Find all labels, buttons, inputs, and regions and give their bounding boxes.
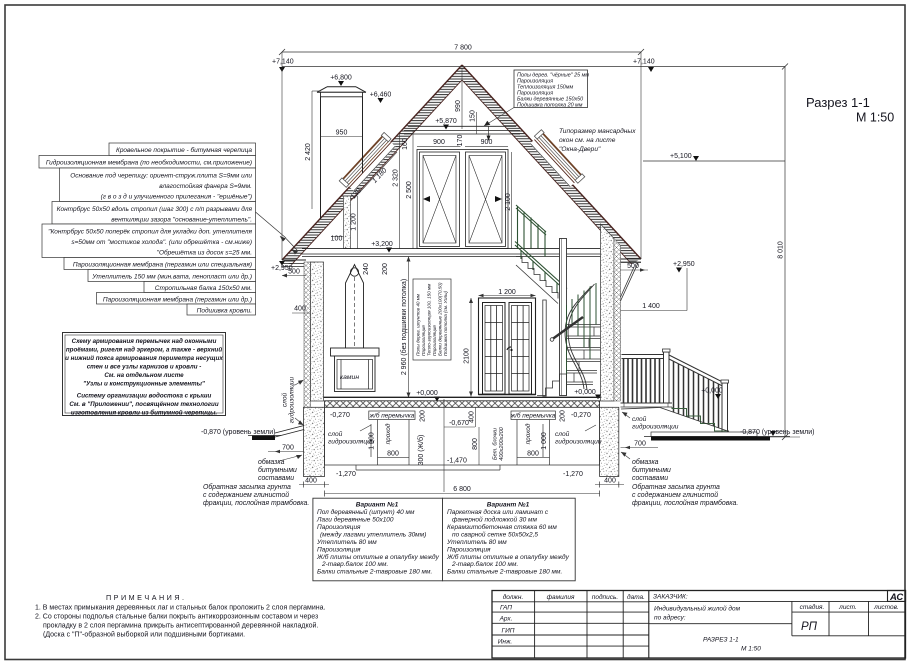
svg-text:(между лагами утеплитель 30мм): (между лагами утеплитель 30мм): [320, 531, 426, 539]
svg-text:См. на отдельном листе: См. на отдельном листе: [104, 372, 184, 379]
svg-text:Арх.: Арх.: [499, 616, 513, 623]
svg-text:Ж/б плиты отлитые в опалубку м: Ж/б плиты отлитые в опалубку между: [446, 553, 570, 561]
svg-text:с содержанием глинистой: с содержанием глинистой: [203, 491, 289, 499]
svg-text:РП: РП: [801, 621, 818, 633]
svg-text:Кровельное покрытие - битумная: Кровельное покрытие - битумная черепица: [116, 146, 252, 154]
svg-text:М 1:50: М 1:50: [856, 111, 894, 125]
svg-text:Обратная засыпка грунта: Обратная засыпка грунта: [203, 483, 291, 491]
svg-text:Керамзитобетонная стяжка 60 мм: Керамзитобетонная стяжка 60 мм: [447, 523, 557, 531]
svg-text:камин: камин: [340, 374, 359, 381]
svg-text:2 320: 2 320: [393, 169, 400, 187]
svg-text:950: 950: [336, 130, 348, 137]
svg-text:Контрбрус 50х50 вдоль стропил: Контрбрус 50х50 вдоль стропил (шаг 300) …: [57, 205, 253, 213]
svg-text:обмазка: обмазка: [258, 458, 285, 466]
svg-text:+5,870: +5,870: [435, 118, 457, 125]
svg-text:должн.: должн.: [503, 593, 524, 601]
svg-text:гидроизоляции: гидроизоляции: [288, 376, 296, 423]
svg-text:по сварной сетке 50х50х2,5: по сварной сетке 50х50х2,5: [452, 531, 538, 539]
svg-text:ЗАКАЗЧИК:: ЗАКАЗЧИК:: [653, 594, 688, 601]
svg-text:изготовления кровли из битумно: изготовления кровли из битумной черепицы…: [71, 410, 217, 417]
svg-text:Стропильная балка 150х50 мм.: Стропильная балка 150х50 мм.: [155, 284, 252, 292]
svg-text:вентиляции зазора "основание-у: вентиляции зазора "основание-утеплитель"…: [111, 217, 252, 224]
svg-text:2 960 (без подшивки потолка): 2 960 (без подшивки потолка): [400, 279, 408, 375]
svg-text:700: 700: [282, 445, 294, 452]
svg-text:ГИП: ГИП: [502, 627, 515, 634]
svg-text:ГАП: ГАП: [500, 605, 512, 612]
svg-text:АС: АС: [889, 592, 903, 603]
svg-text:990: 990: [455, 100, 462, 112]
svg-text:фракции, послойная трамбовка.: фракции, послойная трамбовка.: [632, 499, 738, 507]
svg-text:Гидроизоляционная мембрана (п: Гидроизоляционная мембрана (по необходим…: [46, 159, 252, 167]
svg-text:2 500: 2 500: [406, 181, 413, 199]
svg-text:слой: слой: [555, 430, 570, 438]
svg-text:1. В местах примыкания деревян: 1. В местах примыкания деревянных лаг и …: [35, 604, 326, 612]
svg-text:+0,000: +0,000: [701, 388, 723, 395]
svg-text:Подшивка потолка (см. Узлы): Подшивка потолка (см. Узлы): [443, 290, 448, 356]
svg-text:500: 500: [288, 269, 300, 276]
svg-text:Бет. блочки: Бет. блочки: [493, 428, 499, 460]
svg-text:2. Со стороны подполья стальны: 2. Со стороны подполья стальные балки по…: [35, 613, 318, 621]
svg-text:200: 200: [420, 410, 427, 422]
svg-text:влагостойкая фанера S=9мм.: влагостойкая фанера S=9мм.: [159, 182, 252, 190]
svg-text:+5,100: +5,100: [670, 153, 692, 160]
svg-text:+0,000: +0,000: [416, 390, 438, 397]
svg-text:Тепло-звукоизоляция 100, 150 м: Тепло-звукоизоляция 100, 150 мм: [427, 283, 432, 356]
svg-text:Подшивка кровли.: Подшивка кровли.: [197, 307, 253, 315]
svg-text:слой: слой: [632, 415, 647, 423]
svg-text:окон см. на листе: окон см. на листе: [559, 137, 616, 144]
svg-text:по адресу:: по адресу:: [654, 614, 686, 622]
svg-text:обмазка: обмазка: [632, 458, 659, 466]
svg-text:Пол деревянный (шпунт) 40 мм: Пол деревянный (шпунт) 40 мм: [317, 508, 415, 516]
svg-text:+0,000: +0,000: [574, 389, 596, 396]
svg-text:лист.: лист.: [838, 604, 857, 611]
svg-text:стадия.: стадия.: [800, 603, 825, 611]
svg-text:-0,870 (уровень земли): -0,870 (уровень земли): [740, 429, 814, 436]
svg-text:700: 700: [634, 441, 646, 448]
svg-text:гидроизоляции: гидроизоляции: [328, 438, 375, 446]
svg-text:400: 400: [305, 478, 317, 485]
svg-text:подпись.: подпись.: [592, 593, 619, 601]
svg-text:400: 400: [604, 478, 616, 485]
svg-text:Пароизоляционная мембрана (пер: Пароизоляционная мембрана (пергамин или …: [73, 261, 252, 269]
svg-text:7 800: 7 800: [454, 45, 472, 52]
svg-text:-1,470: -1,470: [447, 458, 467, 465]
svg-text:и нижний пояса армирования пер: и нижний пояса армирования периметра нес…: [65, 355, 223, 362]
svg-text:s=50мм от "мостиков холода". (: s=50мм от "мостиков холода". (или обрешё…: [71, 238, 252, 246]
svg-text:Утеплитель 80 мм: Утеплитель 80 мм: [446, 539, 507, 546]
svg-text:составами: составами: [632, 475, 668, 482]
svg-text:100: 100: [331, 236, 343, 243]
svg-text:фракции, послойная трамбовка.: фракции, послойная трамбовка.: [203, 499, 309, 507]
svg-text:800: 800: [472, 438, 479, 450]
svg-text:Вариант №1: Вариант №1: [356, 502, 399, 509]
svg-text:500: 500: [627, 263, 639, 270]
svg-text:См. в "Приложении", посвящённо: См. в "Приложении", посвящённом технолог…: [69, 401, 218, 408]
svg-text:Обратная засыпка грунта: Обратная засыпка грунта: [632, 483, 720, 491]
svg-text:проход: проход: [524, 423, 532, 444]
svg-text:-0,670: -0,670: [449, 420, 469, 427]
svg-text:М 1:50: М 1:50: [741, 646, 761, 653]
svg-text:-0,270: -0,270: [571, 412, 591, 419]
svg-text:Систему организации водостока: Систему организации водостока с крыши: [77, 393, 212, 400]
svg-text:Подшивка потолка 20 мм: Подшивка потолка 20 мм: [517, 103, 583, 109]
svg-text:фанерной подложкой 30 мм: фанерной подложкой 30 мм: [452, 516, 537, 524]
svg-text:"Обрешётка из досок s=25 мм.: "Обрешётка из досок s=25 мм.: [157, 249, 253, 257]
svg-text:Балки стальные 2-тавровые 180: Балки стальные 2-тавровые 180 мм.: [447, 569, 562, 576]
svg-text:ж/б перемычка: ж/б перемычка: [510, 412, 556, 420]
svg-text:900: 900: [433, 139, 445, 146]
svg-text:"Контрбрус 50х50 поперёк строп: "Контрбрус 50х50 поперёк стропил для укл…: [48, 228, 252, 236]
svg-text:ПРИМЕЧАНИЯ.: ПРИМЕЧАНИЯ.: [106, 593, 187, 602]
svg-text:гидроизоляции: гидроизоляции: [555, 438, 602, 446]
svg-text:проёмами, ригеля над эркером,: проёмами, ригеля над эркером, а также - …: [66, 347, 222, 354]
svg-text:Балки деревянные 200х100(70,50: Балки деревянные 200х100(70,50): [438, 282, 443, 356]
svg-text:6 800: 6 800: [453, 486, 471, 493]
svg-text:400: 400: [294, 306, 306, 313]
svg-text:1 000: 1 000: [541, 432, 548, 450]
svg-text:составами: составами: [258, 475, 294, 482]
svg-text:8 010: 8 010: [778, 241, 785, 259]
svg-text:400: 400: [469, 411, 476, 423]
svg-text:240: 240: [363, 263, 370, 275]
svg-text:1 200: 1 200: [351, 213, 358, 231]
svg-text:Инж.: Инж.: [498, 638, 513, 645]
svg-text:300 (Ж/б): 300 (Ж/б): [417, 435, 425, 466]
svg-text:160: 160: [402, 138, 409, 150]
svg-text:"Узлы и конструкционные элемен: "Узлы и конструкционные элементы": [83, 381, 205, 388]
svg-text:"Окна-Двери": "Окна-Двери": [559, 146, 601, 153]
svg-text:Утеплитель 80 мм: Утеплитель 80 мм: [316, 539, 377, 546]
svg-text:Основание под черепицу: ориент: Основание под черепицу: ориент-струж.пли…: [70, 172, 252, 180]
svg-text:200: 200: [382, 263, 389, 275]
svg-text:Типоразмер мансардных: Типоразмер мансардных: [559, 127, 636, 135]
svg-text:-0,870 (уровень земли): -0,870 (уровень земли): [201, 429, 275, 436]
svg-text:-0,270: -0,270: [330, 412, 350, 419]
svg-text:Разрез 1-1: Разрез 1-1: [806, 95, 870, 110]
svg-text:-1,270: -1,270: [336, 471, 356, 478]
svg-text:1 400: 1 400: [642, 303, 660, 310]
svg-text:-1,270: -1,270: [563, 471, 583, 478]
svg-text:с содержанием глинистой: с содержанием глинистой: [632, 491, 718, 499]
svg-text:150: 150: [470, 110, 477, 122]
svg-text:битумными: битумными: [258, 466, 297, 474]
svg-text:(г в о з д и улучшенного при: (г в о з д и улучшенного прилегания - "е…: [101, 193, 252, 201]
svg-text:гидроизоляции: гидроизоляции: [632, 423, 679, 431]
svg-text:800: 800: [527, 451, 539, 458]
svg-text:прокладку в 2 слоя пергамина п: прокладку в 2 слоя пергамина прикрыть ан…: [43, 622, 318, 630]
svg-text:Утеплитель 150 мм (мин.вата, п: Утеплитель 150 мм (мин.вата, пенопласт и…: [91, 273, 252, 281]
svg-text:200: 200: [560, 410, 567, 422]
svg-text:РАЗРЕЗ 1-1: РАЗРЕЗ 1-1: [703, 637, 739, 644]
svg-text:листов.: листов.: [873, 604, 899, 611]
svg-text:стен и все узлы карнизов и кро: стен и все узлы карнизов и кровли -: [87, 364, 202, 371]
svg-text:2100: 2100: [464, 348, 471, 364]
svg-text:проход: проход: [384, 423, 392, 444]
svg-text:(Доска с "П"-образной выборкой: (Доска с "П"-образной выборкой или подши…: [43, 631, 245, 639]
svg-text:слой: слой: [281, 392, 289, 407]
svg-text:900: 900: [481, 139, 493, 146]
svg-text:битумными: битумными: [632, 466, 671, 474]
svg-text:дата.: дата.: [627, 593, 645, 601]
svg-text:Схему армирования перемычек на: Схему армирования перемычек над оконными: [72, 338, 217, 345]
svg-text:слой: слой: [328, 430, 343, 438]
svg-text:2 420: 2 420: [305, 143, 312, 161]
svg-text:+2,950: +2,950: [673, 261, 695, 268]
svg-text:2-тавр.балок 100 мм.: 2-тавр.балок 100 мм.: [321, 560, 388, 568]
svg-text:2-тавр.балок 100 мм.: 2-тавр.балок 100 мм.: [451, 560, 518, 568]
svg-text:800: 800: [387, 451, 399, 458]
svg-text:+7,140: +7,140: [272, 59, 294, 66]
svg-text:Лаги деревянные 50х100: Лаги деревянные 50х100: [316, 516, 394, 524]
svg-text:Пароизоляция: Пароизоляция: [421, 325, 426, 356]
svg-text:Паркетная доска или ламинат с: Паркетная доска или ламинат с: [447, 508, 549, 516]
svg-text:1 200: 1 200: [498, 289, 516, 296]
svg-text:Балки стальные 2-тавровые 180: Балки стальные 2-тавровые 180 мм.: [317, 569, 432, 576]
svg-text:+3,200: +3,200: [371, 241, 393, 248]
svg-text:+6,460: +6,460: [370, 92, 392, 99]
svg-text:+7,140: +7,140: [633, 59, 655, 66]
svg-text:170: 170: [457, 135, 464, 147]
svg-text:Полы дерев. шпунтов 40 мм: Полы дерев. шпунтов 40 мм: [416, 293, 421, 356]
svg-text:Пароизоляция: Пароизоляция: [317, 524, 361, 531]
svg-text:Пароизоляционная мембрана (пер: Пароизоляционная мембрана (пергамин или …: [103, 296, 252, 304]
svg-text:Ж/б плиты отлитые в опалубку м: Ж/б плиты отлитые в опалубку между: [316, 553, 440, 561]
svg-text:Индивидуальный жилой дом: Индивидуальный жилой дом: [654, 605, 741, 613]
svg-text:Пароизоляция: Пароизоляция: [447, 547, 491, 554]
svg-text:Пароизоляция: Пароизоляция: [432, 325, 437, 356]
svg-text:фамилия: фамилия: [547, 594, 575, 601]
svg-text:ж/б перемычка: ж/б перемычка: [369, 412, 415, 420]
svg-text:+6,800: +6,800: [330, 75, 352, 82]
svg-text:400х200х200: 400х200х200: [499, 426, 505, 460]
svg-text:Пароизоляция: Пароизоляция: [317, 547, 361, 554]
svg-text:2 100: 2 100: [505, 193, 512, 211]
svg-text:Вариант №1: Вариант №1: [487, 502, 530, 509]
